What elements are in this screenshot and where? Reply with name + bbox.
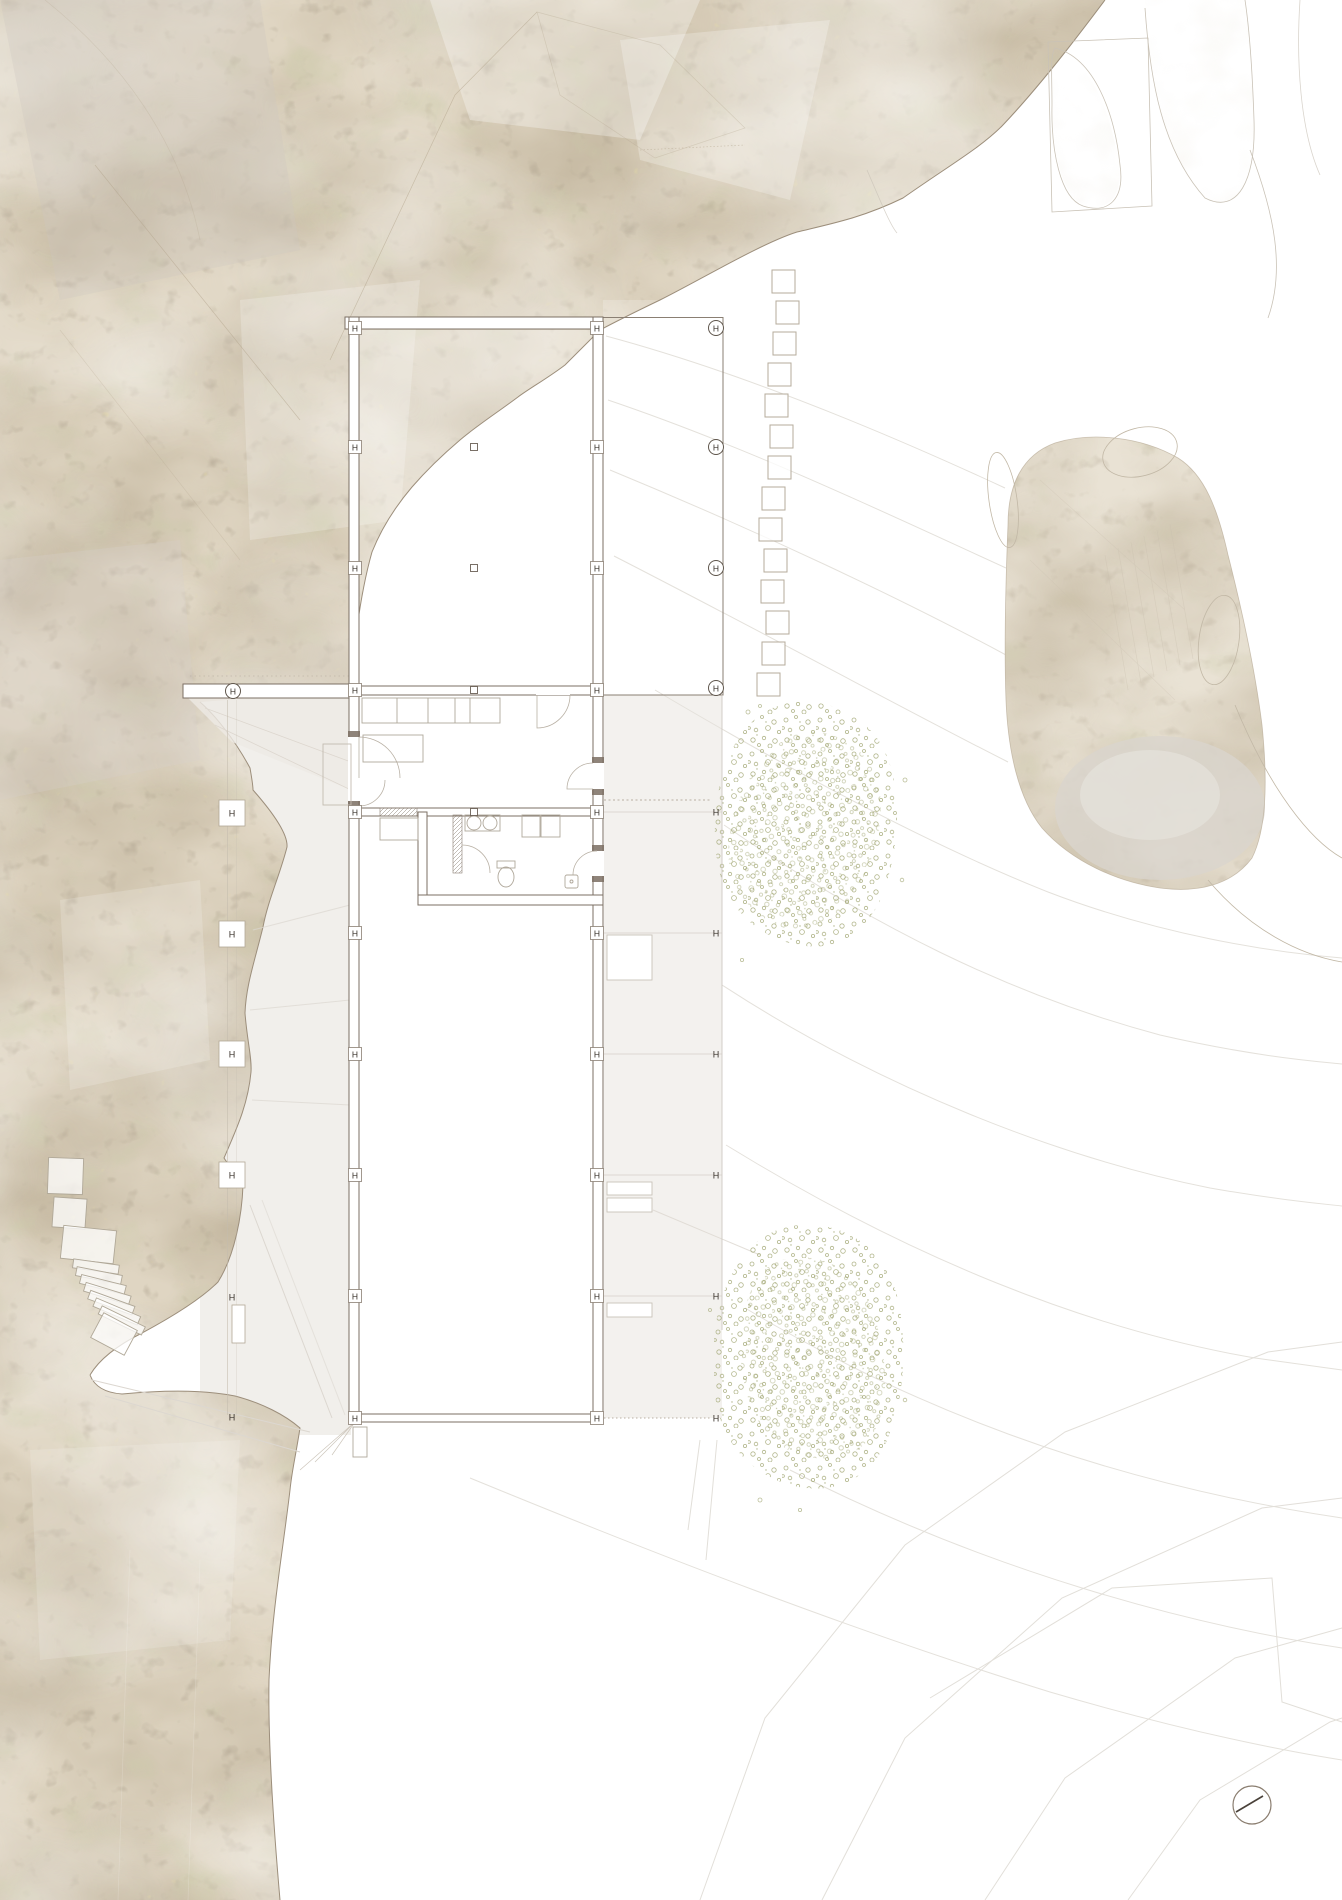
column-marker-label: H [594, 808, 600, 818]
stepping-stone [759, 518, 782, 541]
wall-bath-bottom [418, 895, 603, 905]
wall-column-marker: H [219, 1162, 245, 1188]
door-openings [348, 687, 604, 882]
stepping-stone [762, 642, 785, 665]
stepping-stone [772, 270, 795, 293]
column-marker-label: H [229, 930, 236, 940]
stepping-stones [757, 270, 799, 696]
column-marker-label: H [229, 1293, 236, 1303]
wall-bath-left [418, 812, 427, 905]
wall-column-marker: H [349, 322, 362, 335]
compass-icon [1233, 1786, 1271, 1824]
deck-column-marker: H [709, 561, 724, 576]
deck-column-marker: H [709, 681, 724, 696]
column-marker-label: H [352, 324, 358, 334]
column-marker-label: H [594, 929, 600, 939]
column-marker-label: H [713, 808, 720, 818]
rock-outcrop [982, 419, 1342, 962]
center-column-dot [471, 809, 478, 816]
column-marker-label: H [713, 1292, 720, 1302]
column-marker-label: H [713, 324, 719, 334]
wall-column-marker: H [349, 1048, 362, 1061]
column-marker-label: H [352, 1171, 358, 1181]
wall-column-marker: H [349, 1412, 362, 1425]
column-marker-label: H [594, 1050, 600, 1060]
wall-column-marker: H [349, 927, 362, 940]
column-marker-label: H [594, 1292, 600, 1302]
column-marker-label: H [713, 443, 719, 453]
column-marker-label: H [352, 1414, 358, 1424]
tree-canopy-group [709, 702, 908, 1512]
column-marker-label: H [352, 564, 358, 574]
column-marker-label: H [713, 684, 719, 694]
compass-needle [1236, 1796, 1263, 1812]
wall-bottom [351, 1414, 603, 1422]
sink-1 [467, 816, 481, 830]
wall-column-marker: H [591, 684, 604, 697]
wall-column-marker: H [219, 800, 245, 826]
deck-column-marker: H [709, 321, 724, 336]
column-marker-label: H [352, 1050, 358, 1060]
stepping-stone [764, 549, 787, 572]
sink-2 [483, 816, 497, 830]
column-marker-label: H [352, 686, 358, 696]
center-column-dot [471, 444, 478, 451]
fixtures [323, 698, 578, 888]
column-marker-label: H [713, 929, 720, 939]
wall-left [349, 317, 359, 1418]
column-marker-label: H [594, 686, 600, 696]
wall-column-marker: H [591, 562, 604, 575]
wall-column-marker: H [591, 441, 604, 454]
stepping-stone [765, 394, 788, 417]
column-marker-label: H [594, 443, 600, 453]
column-marker-label: H [229, 1171, 236, 1181]
center-column-dot [471, 687, 478, 694]
column-marker-label: H [713, 1171, 720, 1181]
column-marker-label: H [594, 564, 600, 574]
stepping-stone [757, 673, 780, 696]
column-marker-label: H [713, 564, 719, 574]
column-marker-label: H [230, 687, 236, 697]
tree-2 [713, 1225, 904, 1489]
column-marker-label: H [713, 1050, 720, 1060]
lower-terrace-wash [200, 695, 722, 1435]
tree-1 [710, 702, 898, 947]
column-marker-label: H [594, 324, 600, 334]
wall-top [345, 317, 603, 329]
terrain-texture [0, 0, 1105, 1900]
wall-column-marker: H [349, 806, 362, 819]
wall-column-marker: H [591, 1048, 604, 1061]
deck-column-marker: H [709, 440, 724, 455]
stepping-stone [768, 456, 791, 479]
column-marker-label: H [352, 929, 358, 939]
wall-column-marker: H [349, 562, 362, 575]
shower [565, 875, 578, 888]
stepping-stone [762, 487, 785, 510]
wall-column-marker: H [591, 322, 604, 335]
column-marker-label: H [713, 1414, 720, 1424]
column-marker-label: H [229, 809, 236, 819]
wall-column-marker: H [349, 684, 362, 697]
wall-column-marker: H [591, 927, 604, 940]
kitchen-counter [362, 698, 500, 762]
stepping-stone [773, 332, 796, 355]
door-arcs [359, 695, 597, 875]
stepping-stone [768, 363, 791, 386]
column-marker-label: H [594, 1171, 600, 1181]
column-marker-label: H [594, 1414, 600, 1424]
upper-deck [603, 318, 723, 696]
toilet [497, 861, 515, 887]
wall-column-marker: H [349, 441, 362, 454]
column-marker-label: H [229, 1050, 236, 1060]
deck-column-marker: H [226, 684, 241, 699]
entry-bridge [183, 684, 351, 698]
wall-column-marker: H [591, 1169, 604, 1182]
wall-column-marker: H [591, 806, 604, 819]
wall-column-marker: H [349, 1290, 362, 1303]
wall-column-marker: H [349, 1169, 362, 1182]
stepping-stone [770, 425, 793, 448]
column-marker-label: H [229, 1413, 236, 1423]
wall-column-marker: H [219, 921, 245, 947]
wall-column-marker: H [591, 1412, 604, 1425]
column-marker-label: H [352, 1292, 358, 1302]
center-column-dot [471, 565, 478, 572]
column-marker-label: H [352, 808, 358, 818]
wall-column-marker: H [591, 1290, 604, 1303]
site-plan-drawing: HHHHHHHHHHHHHHHHHHHHHHHHHHHHHHHHHHHHH [0, 0, 1342, 1900]
stepping-stone [776, 301, 799, 324]
stepping-stone [766, 611, 789, 634]
bath-vanity [380, 815, 560, 840]
site-plan-canvas: HHHHHHHHHHHHHHHHHHHHHHHHHHHHHHHHHHHHH [0, 0, 1342, 1900]
stepping-stone [761, 580, 784, 603]
column-marker-label: H [352, 443, 358, 453]
wall-column-marker: H [219, 1041, 245, 1067]
